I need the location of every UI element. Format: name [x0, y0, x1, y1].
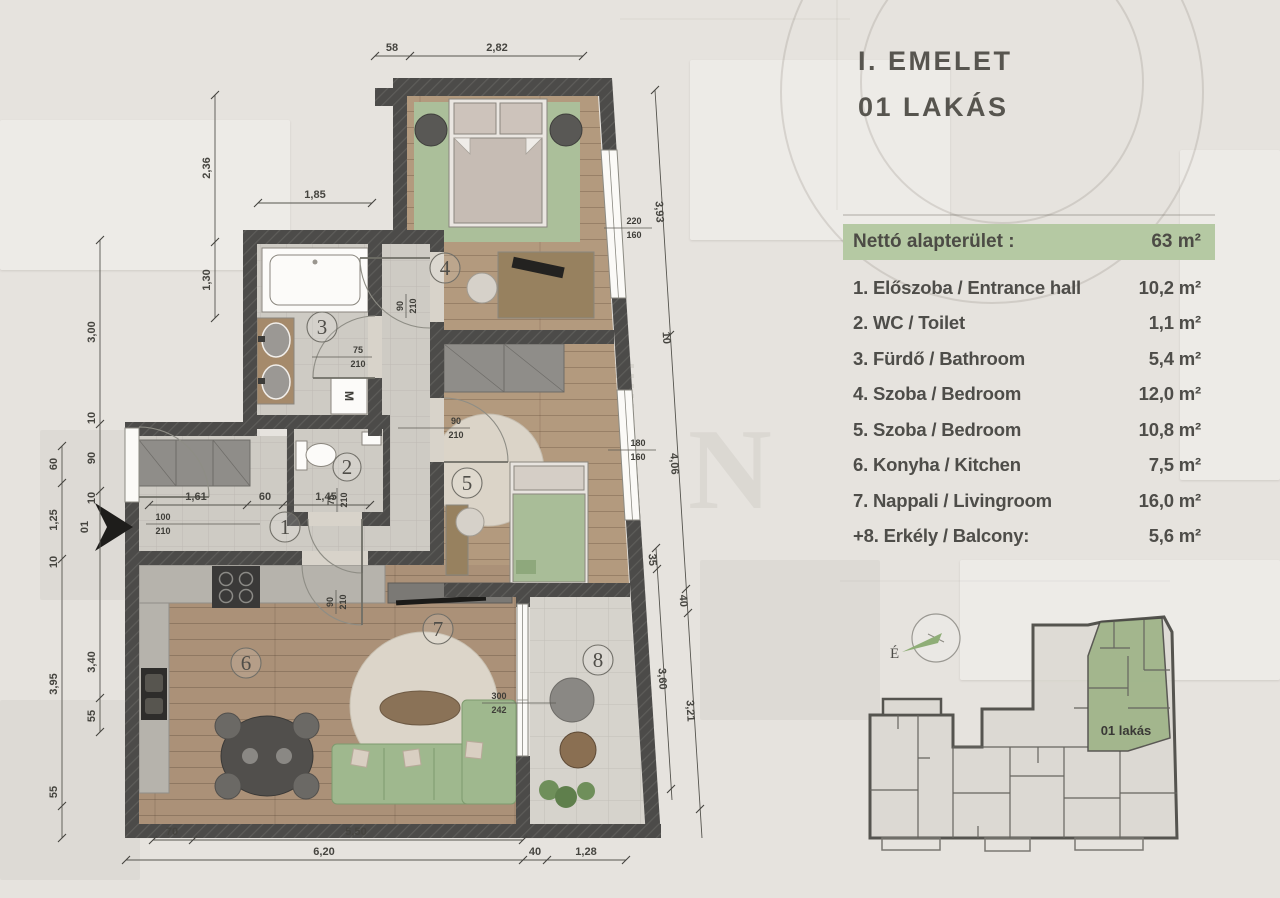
legend-row: 6. Konyha / Kitchen7,5 m² [843, 448, 1215, 484]
bed4-door-h: 210 [408, 298, 418, 313]
entrance-opening [125, 428, 139, 502]
row-label: 4. Szoba / Bedroom [853, 383, 1021, 405]
row-label: 3. Fürdő / Bathroom [853, 348, 1025, 370]
svg-text:7: 7 [433, 617, 444, 641]
row-value: 12,0 m² [1139, 383, 1201, 405]
svg-text:1: 1 [280, 515, 291, 539]
dim-e-10a: 10 [86, 412, 98, 424]
entrance-door-w: 100 [155, 512, 170, 522]
living-door-w: 90 [325, 597, 335, 607]
title-apartment: 01 LAKÁS [858, 84, 1013, 130]
dim-b-70: 70 [166, 826, 178, 838]
legend-row: +8. Erkély / Balcony:5,6 m² [843, 519, 1215, 555]
dim-bath-185: 1,85 [304, 189, 325, 201]
row-value: 1,1 m² [1149, 312, 1201, 334]
dim-b-620: 6,20 [313, 846, 334, 858]
dim-l-395: 3,95 [48, 673, 60, 694]
legend-header-label: Nettó alapterület : [853, 231, 1015, 253]
bath-door-w: 75 [353, 345, 363, 355]
row-value: 7,5 m² [1149, 454, 1201, 476]
bed5-door-h: 210 [448, 430, 463, 440]
dim-e-55: 55 [86, 710, 98, 722]
dim-e-10b: 10 [86, 492, 98, 504]
legend-header-value: 63 m² [1151, 231, 1201, 253]
bath-door-h: 210 [350, 359, 365, 369]
dim-r-35: 35 [646, 553, 659, 566]
row-label: 7. Nappali / Livingroom [853, 490, 1052, 512]
living-door-h: 210 [338, 594, 348, 609]
dim-e-340: 3,40 [86, 651, 98, 672]
page-title: I. EMELET 01 LAKÁS [858, 38, 1013, 130]
legend-row: 2. WC / Toilet1,1 m² [843, 306, 1215, 342]
bed5-door-w: 90 [451, 416, 461, 426]
dim-r-321: 3,21 [683, 700, 696, 722]
wardrobe [444, 344, 564, 392]
dim-l-55: 55 [48, 786, 60, 798]
dim-l-125: 1,25 [48, 509, 60, 530]
entrance-door-h: 210 [155, 526, 170, 536]
washing-machine: M [331, 378, 367, 414]
dim-l-130: 1,30 [201, 269, 213, 290]
legend-row: 3. Fürdő / Bathroom5,4 m² [843, 341, 1215, 377]
balcony-door-w: 300 [491, 691, 506, 701]
dim-r-10: 10 [660, 331, 673, 344]
dim-hall-60: 60 [259, 491, 271, 503]
wc-door-w: 75 [326, 495, 336, 505]
wc-door-h: 210 [339, 492, 349, 507]
title-floor: I. EMELET [858, 38, 1013, 84]
dim-r-360: 3,60 [655, 668, 668, 690]
room-number-2: 2 [333, 453, 361, 481]
dim-l-236: 2,36 [201, 157, 213, 178]
legend-row: 5. Szoba / Bedroom10,8 m² [843, 412, 1215, 448]
dim-r-393: 3,93 [652, 201, 665, 223]
svg-text:5: 5 [462, 471, 473, 495]
dim-r-40: 40 [677, 594, 690, 607]
room-number-6: 6 [231, 648, 261, 678]
compass-label: É [890, 645, 899, 662]
dim-b-550: 5,50 [345, 826, 366, 838]
bed4-door-w: 90 [395, 301, 405, 311]
row-label: 2. WC / Toilet [853, 312, 965, 334]
dim-b-128: 1,28 [575, 846, 596, 858]
win-mid-w: 180 [630, 438, 645, 448]
compass: É [890, 614, 960, 662]
washer-label: M [342, 391, 356, 401]
hall-closet [139, 440, 250, 486]
highlighted-apartment: 01 lakás [1088, 618, 1170, 751]
row-label: 5. Szoba / Bedroom [853, 419, 1021, 441]
keyplan-apartment-label: 01 lakás [1101, 723, 1152, 738]
svg-text:4: 4 [440, 256, 451, 280]
legend-row: 4. Szoba / Bedroom12,0 m² [843, 377, 1215, 413]
row-value: 5,4 m² [1149, 348, 1201, 370]
room-number-7: 7 [423, 614, 453, 644]
dim-l-60: 60 [48, 458, 60, 470]
room-number-8: 8 [583, 645, 613, 675]
floor-plan: M [0, 0, 770, 898]
dim-l-10: 10 [48, 556, 60, 568]
balcony-door-h: 242 [491, 705, 506, 715]
room-number-5: 5 [452, 468, 482, 498]
key-plan: É 01 lakás [858, 608, 1198, 888]
svg-text:3: 3 [317, 315, 328, 339]
room-number-3: 3 [307, 312, 337, 342]
row-value: 5,6 m² [1149, 525, 1201, 547]
legend-row: 1. Előszoba / Entrance hall10,2 m² [843, 270, 1215, 306]
win-top-h: 160 [626, 230, 641, 240]
legend-row: 7. Nappali / Livingroom16,0 m² [843, 483, 1215, 519]
dim-b-40: 40 [529, 846, 541, 858]
win-top-w: 220 [626, 216, 641, 226]
win-mid-h: 160 [630, 452, 645, 462]
dim-top-282: 2,82 [486, 42, 507, 54]
svg-text:2: 2 [342, 455, 353, 479]
dim-hall-161: 1,61 [185, 491, 206, 503]
dim-l-300: 3,00 [86, 321, 98, 342]
row-label: 6. Konyha / Kitchen [853, 454, 1021, 476]
legend-header: Nettó alapterület : 63 m² [843, 224, 1215, 260]
row-label: 1. Előszoba / Entrance hall [853, 277, 1081, 299]
dim-e-90: 90 [86, 452, 98, 464]
row-value: 16,0 m² [1139, 490, 1201, 512]
entrance-marker: 01 [79, 503, 133, 551]
row-value: 10,2 m² [1139, 277, 1201, 299]
room-number-1: 1 [270, 512, 300, 542]
svg-text:8: 8 [593, 648, 604, 672]
dim-r-406: 4,06 [667, 453, 680, 475]
entrance-label: 01 [79, 521, 91, 533]
area-legend: Nettó alapterület : 63 m² 1. Előszoba / … [843, 214, 1215, 554]
legend-rows: 1. Előszoba / Entrance hall10,2 m² 2. WC… [843, 270, 1215, 554]
row-value: 10,8 m² [1139, 419, 1201, 441]
room-number-4: 4 [430, 253, 460, 283]
row-label: +8. Erkély / Balcony: [853, 525, 1029, 547]
dim-top-58: 58 [386, 42, 398, 54]
svg-text:6: 6 [241, 651, 252, 675]
